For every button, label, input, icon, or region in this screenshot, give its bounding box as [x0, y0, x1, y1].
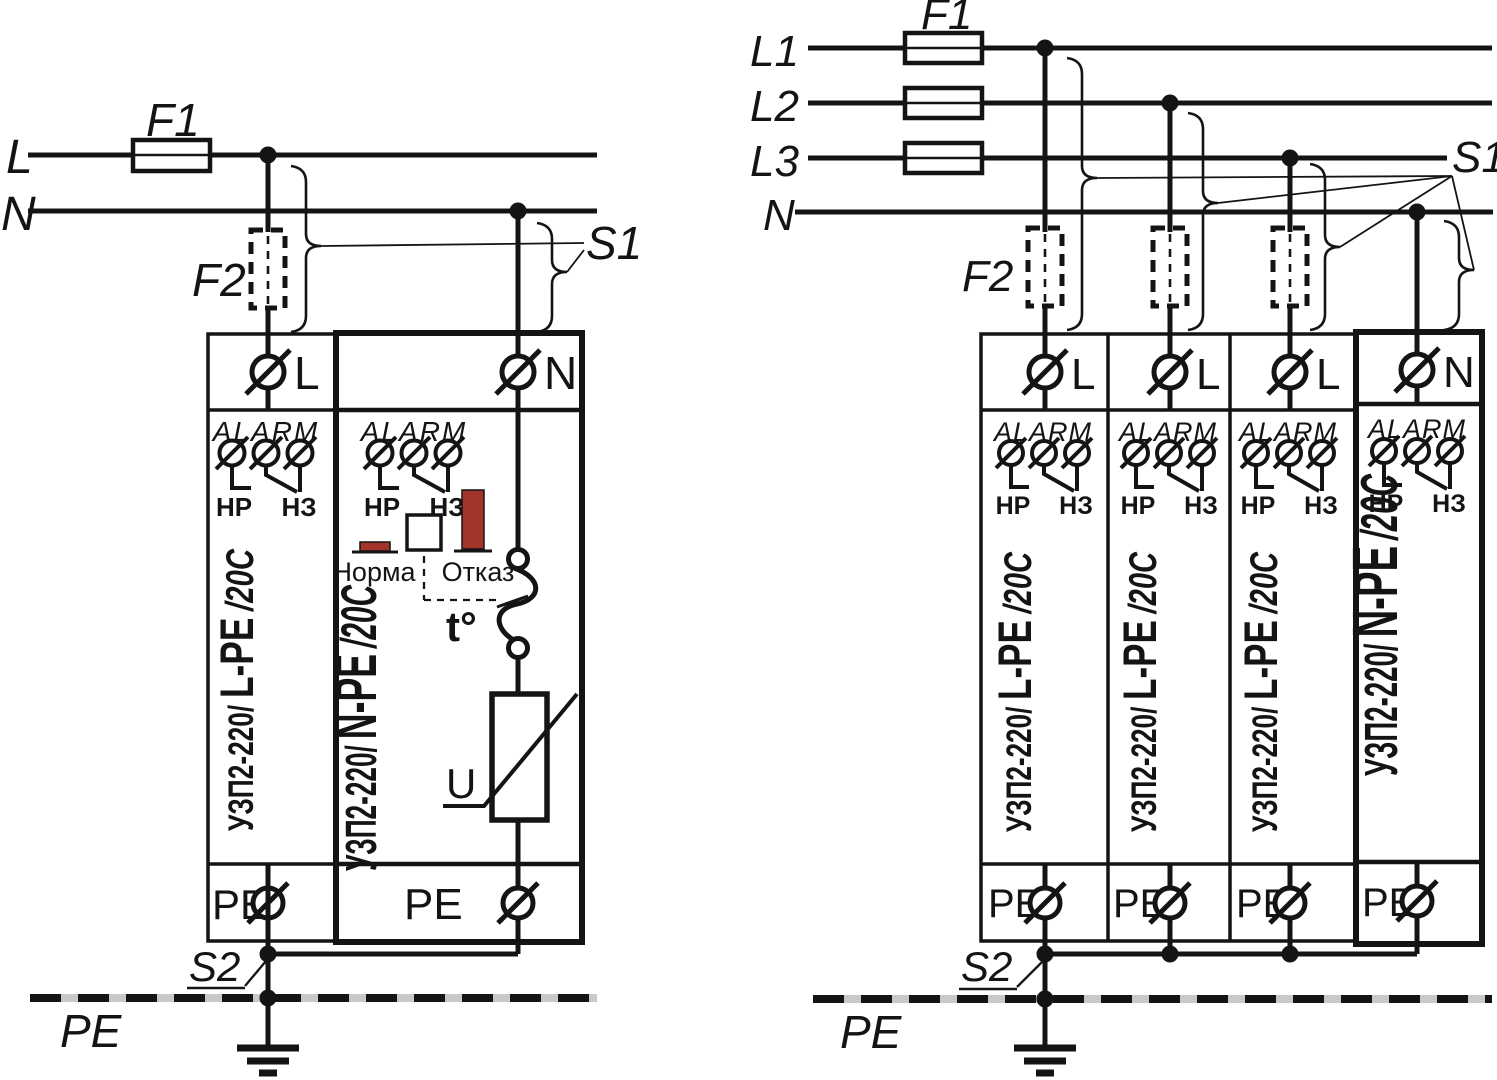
- alarm-screws-icon: [1241, 438, 1337, 468]
- nc-label: НЗ: [1432, 490, 1466, 518]
- three-phase-diagram: L1 L2 L3 N F1: [750, 0, 1497, 1073]
- ground-icon: [237, 1048, 299, 1073]
- junction-dot: [260, 990, 277, 1007]
- junction-dot: [260, 147, 277, 164]
- no-label: НР: [1121, 492, 1156, 520]
- terminal-letter: N: [544, 347, 577, 399]
- alarm-screws-icon: [1369, 436, 1465, 466]
- nc-label: НЗ: [1304, 492, 1338, 520]
- no-label: НР: [1241, 492, 1276, 520]
- fuse-f1-label: F1: [921, 0, 972, 39]
- pe-label: PE: [840, 1006, 903, 1058]
- line-N-label: N: [1, 188, 36, 241]
- s2-label: S2: [189, 943, 240, 990]
- line-L3-label: L3: [750, 137, 799, 186]
- terminal-letter: L: [1316, 350, 1340, 399]
- terminal-letter: L: [294, 347, 320, 399]
- left-power-lines: L N: [1, 131, 597, 241]
- right-s1-group: S1: [1067, 58, 1497, 330]
- terminal-letter: L: [1071, 350, 1095, 399]
- varistor-body-icon: [492, 694, 547, 820]
- junction-dot: [260, 946, 277, 963]
- single-phase-diagram: L N F1 F2 S1: [1, 94, 642, 1073]
- s1-label: S1: [586, 217, 642, 269]
- no-label: НР: [996, 492, 1031, 520]
- left-module-npe: N ALARM НР НЗ Норма Отказ: [322, 333, 582, 954]
- ok-bar-icon: [360, 542, 390, 551]
- brace-l-icon: [291, 166, 321, 332]
- line-N-label: N: [763, 191, 795, 240]
- junction-dot: [1162, 946, 1179, 963]
- no-label: НР: [364, 492, 400, 522]
- indicator-window-icon: [407, 515, 441, 550]
- varistor-label: U: [446, 760, 476, 807]
- fuse-f2-label: F2: [192, 254, 246, 306]
- brace-l2-icon: [1188, 113, 1218, 330]
- junction-dot: [1282, 946, 1299, 963]
- s1-label: S1: [1452, 133, 1497, 182]
- nc-label: НЗ: [1059, 492, 1093, 520]
- s1-leader-4: [1452, 176, 1474, 270]
- s1-leader-1: [321, 243, 584, 246]
- surge-protector-wiring-schematic: L N F1 F2 S1: [0, 0, 1497, 1080]
- junction-dot: [1282, 150, 1299, 167]
- brace-n-icon: [1444, 221, 1474, 330]
- junction-dot: [510, 203, 527, 220]
- nc-label: НЗ: [281, 492, 316, 522]
- brace-n-icon: [537, 223, 567, 332]
- left-s1-group: S1: [291, 166, 642, 332]
- s2-leader: [245, 961, 266, 986]
- s1-leader-1: [1097, 176, 1452, 178]
- right-pe-section: S2 PE: [813, 943, 1492, 1073]
- line-L2-label: L2: [750, 82, 799, 131]
- terminal-letter: L: [1196, 350, 1220, 399]
- alarm-screws-icon: [364, 437, 464, 469]
- junction-dot: [1037, 946, 1054, 963]
- ok-label: Норма: [332, 557, 416, 587]
- pe-label: PE: [60, 1005, 123, 1057]
- right-module-4: N ALARM НР НЗ УЗП2-220/N-PE/20C PE: [1339, 332, 1482, 954]
- left-fuse-f1: F1: [133, 94, 210, 171]
- fail-label: Отказ: [442, 557, 515, 587]
- nc-label: НЗ: [1184, 492, 1218, 520]
- ground-icon: [1014, 1048, 1076, 1073]
- s1-leader-2: [567, 250, 584, 272]
- left-module-lpe: L ALARM НР НЗ УЗП2-220/L-PE/20C PE: [208, 334, 336, 941]
- thermal-contact-bottom: [509, 639, 528, 658]
- fail-bar-icon: [462, 490, 484, 549]
- alarm-screws-icon: [216, 437, 316, 469]
- right-power-lines: L1 L2 L3 N: [750, 27, 1493, 240]
- fuse-f2-label: F2: [962, 252, 1013, 301]
- right-fuses-f1: F1: [905, 0, 982, 173]
- brace-l1-icon: [1067, 58, 1097, 330]
- junction-dot: [1409, 204, 1426, 221]
- no-label: НР: [216, 492, 252, 522]
- line-L1-label: L1: [750, 27, 799, 76]
- s2-label: S2: [961, 943, 1012, 990]
- alarm-screws-icon: [1121, 438, 1217, 468]
- s2-leader: [1017, 962, 1042, 987]
- line-L-label: L: [6, 131, 33, 184]
- terminal-letter: N: [1443, 348, 1475, 397]
- junction-dot: [1037, 40, 1054, 57]
- junction-dot: [1162, 95, 1179, 112]
- fuse-f1-label: F1: [146, 94, 200, 146]
- pe-terminal-label: PE: [404, 880, 463, 929]
- thermal-label: t°: [446, 603, 477, 650]
- thermal-contact-top: [509, 550, 528, 569]
- junction-dot: [1037, 991, 1054, 1008]
- schematic-canvas: L N F1 F2 S1: [0, 0, 1497, 1080]
- alarm-screws-icon: [996, 438, 1092, 468]
